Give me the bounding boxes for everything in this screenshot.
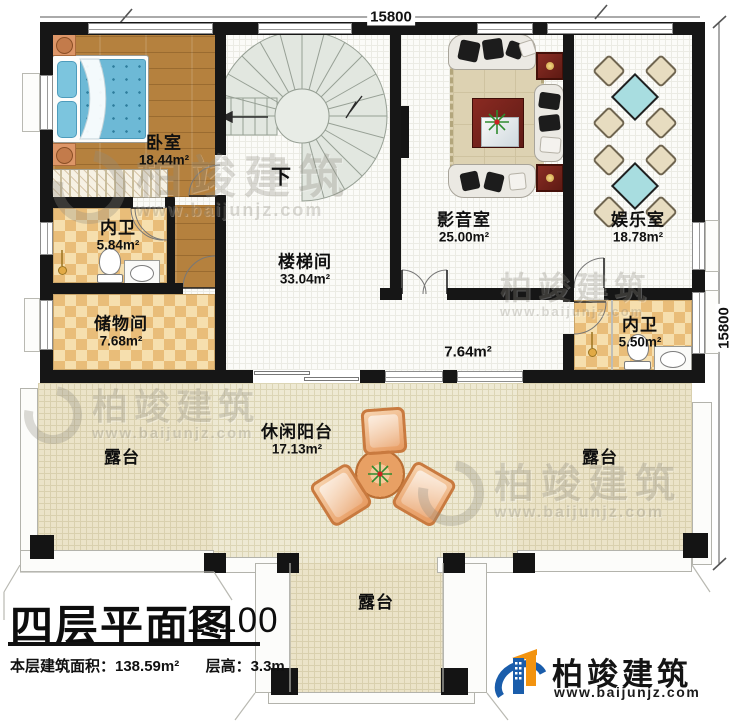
- wall: [390, 33, 401, 298]
- room-label-bath-right: 内卫5.50m²: [619, 316, 662, 349]
- room-label-bath-left: 内卫5.84m²: [97, 219, 140, 252]
- wall: [215, 33, 226, 155]
- window: [547, 23, 673, 34]
- wall: [360, 370, 385, 383]
- wall: [53, 283, 183, 294]
- plant: [485, 110, 509, 134]
- room-label-terrace-right: 露台: [582, 449, 618, 467]
- dimension-right-label: 15800: [716, 304, 733, 352]
- stair-down-label: 下: [271, 161, 291, 190]
- wall: [167, 208, 175, 283]
- door-leaves: [131, 196, 606, 302]
- window: [477, 23, 533, 34]
- window: [88, 23, 213, 34]
- wall: [443, 370, 457, 383]
- floor-plan: 柏竣建筑 www.baijunjz.com 柏竣建筑 www.baijunjz.…: [0, 0, 750, 725]
- title-info: 本层建筑面积：138.59m² 层高：3.3m: [10, 655, 285, 676]
- window: [692, 222, 705, 270]
- room-label-bedroom: 卧室18.44m²: [139, 134, 189, 167]
- window-ledge: [24, 298, 40, 352]
- title-underline: [8, 642, 260, 646]
- wall: [563, 33, 574, 302]
- wall: [215, 195, 226, 287]
- wall: [563, 334, 574, 370]
- room-label-game: 娱乐室18.78m²: [611, 211, 665, 244]
- door-swings: [131, 165, 606, 334]
- window: [692, 292, 705, 354]
- window-ledge: [22, 73, 40, 132]
- window-ledge: [705, 220, 719, 272]
- room-label-stairwell: 楼梯间33.04m²: [278, 253, 332, 286]
- drawing-scale: 1:100: [186, 601, 279, 641]
- room-label-balcony: 休闲阳台17.13m²: [261, 423, 333, 456]
- company-logo-icon: [488, 646, 548, 704]
- bed-sheet: [80, 59, 106, 139]
- window: [457, 371, 523, 382]
- wall: [215, 283, 226, 294]
- wall: [523, 370, 692, 383]
- room-label-storage: 储物间7.68m²: [94, 315, 148, 348]
- wall: [165, 197, 175, 208]
- spiral-staircase: [217, 31, 387, 201]
- sliding-door: [253, 370, 360, 383]
- wall: [380, 288, 402, 300]
- floor-height-info: 层高：3.3m: [206, 658, 285, 675]
- wall: [447, 288, 574, 300]
- window: [40, 75, 53, 130]
- wall: [604, 288, 692, 300]
- window: [40, 222, 53, 255]
- room-label-terrace-left: 露台: [104, 449, 140, 467]
- window: [385, 371, 443, 382]
- window: [258, 23, 352, 34]
- wall: [40, 370, 253, 383]
- company-logo-url: www.baijunjz.com: [554, 684, 700, 700]
- wall: [53, 197, 133, 208]
- plant: [368, 462, 392, 486]
- wall: [215, 294, 226, 370]
- room-label-media: 影音室25.00m²: [437, 211, 491, 244]
- dimension-top-label: 15800: [367, 9, 415, 26]
- room-label-hall-area: 7.64m²: [444, 343, 492, 360]
- room-label-terrace-bottom: 露台: [358, 594, 394, 612]
- floor-area-info: 本层建筑面积：138.59m²: [10, 658, 179, 675]
- window: [40, 300, 53, 350]
